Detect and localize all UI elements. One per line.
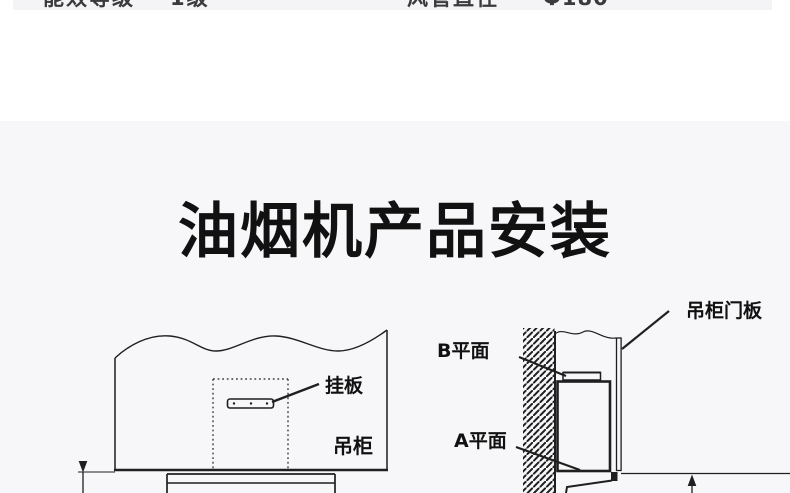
- cabinet-side-section-view: [516, 311, 790, 493]
- panel-bottom-block: [611, 472, 618, 481]
- side-torn-top-edge: [555, 331, 616, 338]
- hood-canopy-edge: [566, 481, 612, 493]
- hanger-plate-pointer-line: [272, 384, 319, 402]
- hood-body-side: [558, 382, 611, 472]
- label-cabinet: 吊柜: [333, 436, 373, 456]
- hanger-plate-hole: [233, 402, 235, 404]
- cabinet-torn-top-edge: [115, 330, 387, 358]
- hanger-plate-hole: [266, 402, 268, 404]
- label-hanger-plate: 挂板: [325, 376, 363, 396]
- cabinet-front-view: [78, 330, 388, 493]
- wall-hatch: [523, 328, 555, 493]
- dimension-arrow-down: [79, 461, 88, 473]
- door-panel-pointer-line: [622, 311, 669, 349]
- mounting-zone-dashed: [213, 379, 288, 469]
- label-a-plane: A平面: [454, 431, 507, 451]
- cabinet-door-panel: [617, 338, 622, 471]
- installation-diagrams: [0, 0, 790, 493]
- hood-top-lip: [563, 373, 601, 381]
- label-b-plane: B平面: [437, 341, 489, 361]
- hanger-plate-hole: [250, 402, 252, 404]
- label-door-panel: 吊柜门板: [686, 301, 762, 321]
- product-detail-page: 能效等级 1级 风管直径 Φ180 油烟机产品安装: [0, 0, 790, 493]
- dimension-arrow-up: [688, 475, 697, 487]
